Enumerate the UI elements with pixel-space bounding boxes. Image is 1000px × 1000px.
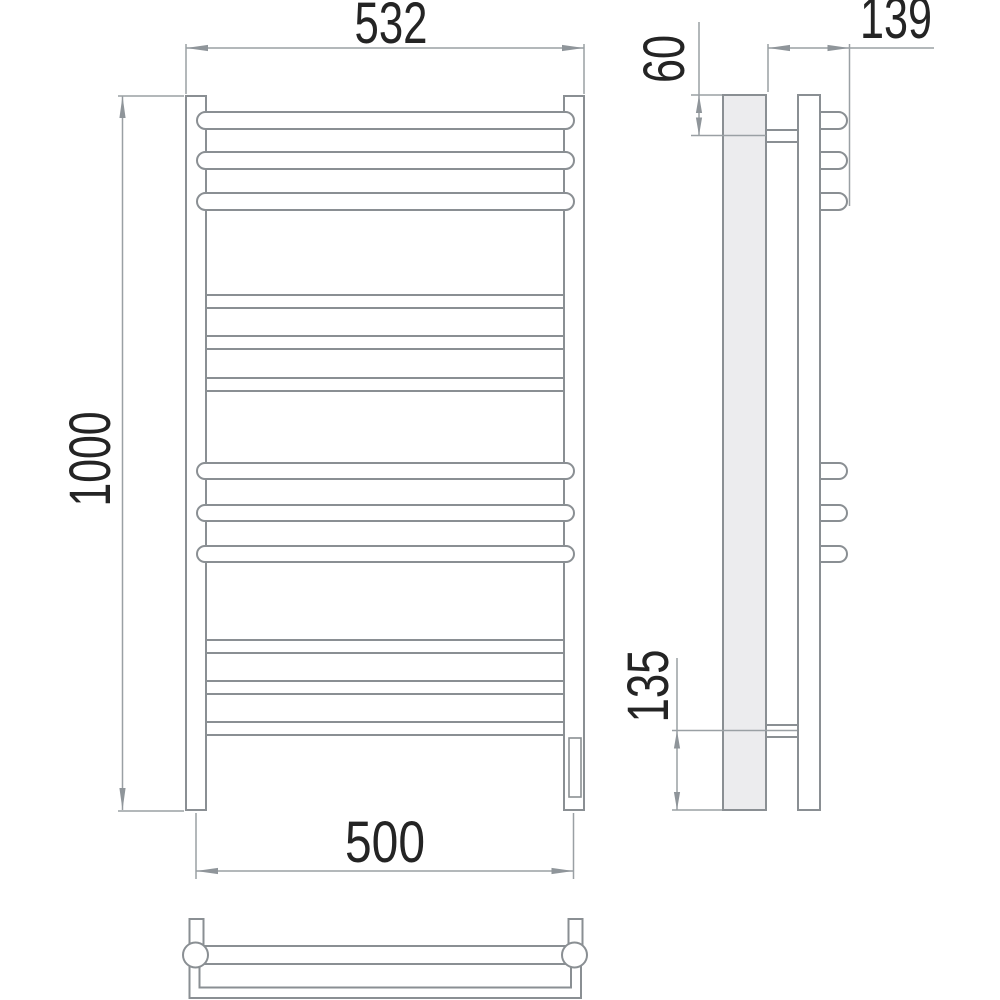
- dim-label-bottom-bracket-offset: 135: [616, 650, 681, 723]
- flat-rung-3: [206, 378, 564, 391]
- flat-rung-6: [206, 722, 564, 735]
- side-rung-end-1: [820, 112, 847, 129]
- flat-rung-2: [206, 336, 564, 349]
- side-rung-end-6: [820, 546, 847, 562]
- dimension-bottom-bracket-offset: 135: [616, 650, 797, 811]
- side-wall-plate: [723, 95, 766, 810]
- dim-label-depth: 139: [860, 0, 932, 51]
- bottom-left-collector-circle: [183, 943, 208, 968]
- round-rung-1: [197, 112, 574, 129]
- round-rung-3: [197, 193, 574, 210]
- side-view: [723, 95, 847, 810]
- dimension-lines-139: [768, 44, 934, 206]
- side-rung-end-3: [820, 193, 847, 210]
- dim-label-overall-height: 1000: [58, 412, 123, 507]
- round-rung-6: [197, 546, 574, 562]
- dim-label-top-bracket-offset: 60: [632, 35, 697, 83]
- side-rung-end-2: [820, 152, 847, 169]
- heating-element-housing: [569, 738, 581, 797]
- flat-rung-1: [206, 295, 564, 308]
- side-rung-end-5: [820, 505, 847, 521]
- dim-label-overall-width: 532: [355, 0, 428, 56]
- round-rung-5: [197, 505, 574, 521]
- dimension-mounting-width: 500: [196, 810, 574, 879]
- dimension-depth: 139: [768, 0, 934, 206]
- round-rung-4: [197, 463, 574, 479]
- side-top-bracket: [766, 130, 798, 142]
- flat-rung-4: [206, 640, 564, 653]
- front-view: [186, 96, 584, 810]
- bottom-view: [183, 919, 587, 998]
- technical-drawing-page: 532 1000 500 60 139: [0, 0, 1000, 1000]
- dim-label-mounting-width: 500: [345, 810, 425, 875]
- dimension-overall-height: 1000: [58, 96, 184, 811]
- flat-rung-5: [206, 681, 564, 694]
- bottom-right-collector-circle: [562, 943, 587, 968]
- side-front-tube: [798, 95, 820, 810]
- bottom-rear-crossbar: [196, 946, 574, 964]
- dimension-lines-1000: [118, 96, 184, 811]
- towel-rail-drawing: 532 1000 500 60 139: [0, 0, 1000, 1000]
- dimension-overall-width: 532: [186, 0, 584, 94]
- round-rung-2: [197, 152, 574, 169]
- side-rung-end-4: [820, 463, 847, 479]
